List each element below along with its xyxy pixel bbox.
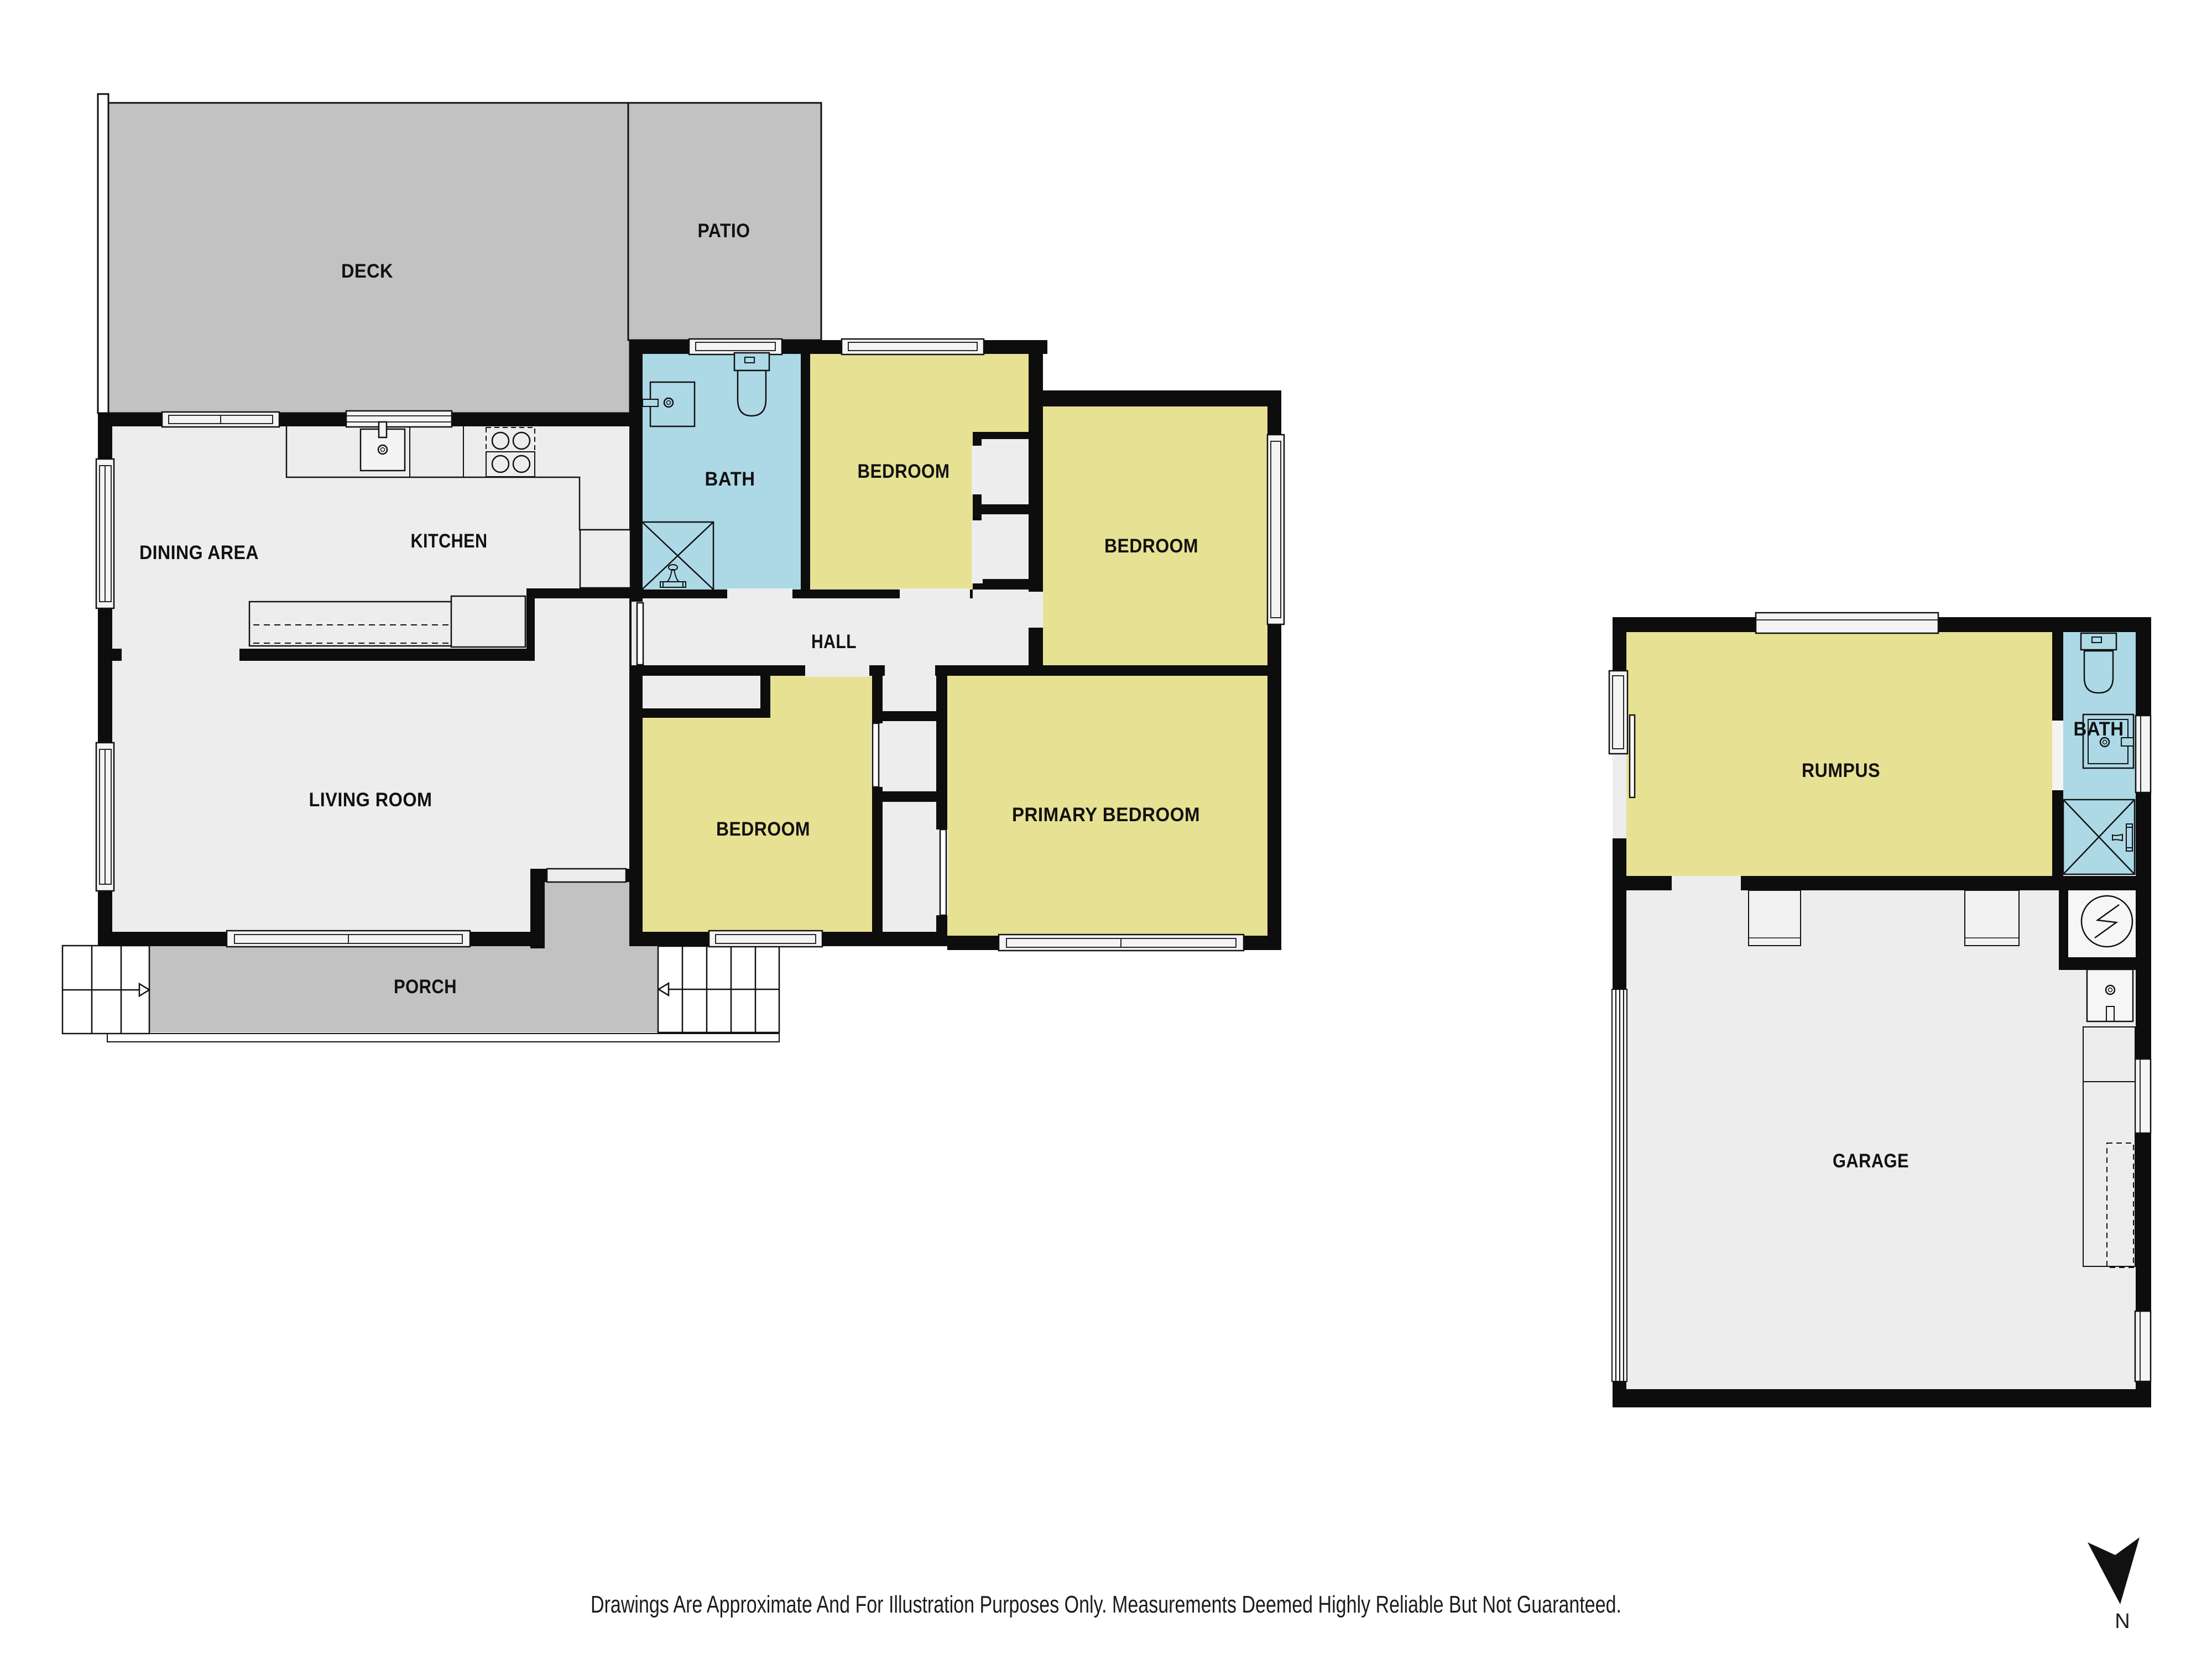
svg-text:LIVING ROOM: LIVING ROOM [309, 789, 432, 811]
svg-text:HALL: HALL [811, 631, 857, 653]
svg-text:DINING AREA: DINING AREA [139, 542, 259, 564]
svg-text:RUMPUS: RUMPUS [1802, 760, 1880, 781]
svg-text:DECK: DECK [341, 260, 393, 282]
svg-text:KITCHEN: KITCHEN [411, 530, 488, 552]
svg-text:PATIO: PATIO [698, 220, 750, 242]
svg-text:BEDROOM: BEDROOM [858, 461, 950, 482]
svg-text:BEDROOM: BEDROOM [1104, 535, 1198, 557]
svg-text:BATH: BATH [705, 468, 755, 490]
svg-text:GARAGE: GARAGE [1833, 1150, 1909, 1172]
svg-text:PRIMARY BEDROOM: PRIMARY BEDROOM [1012, 804, 1200, 826]
svg-text:PORCH: PORCH [394, 976, 457, 998]
svg-text:Drawings Are Approximate And F: Drawings Are Approximate And For Illustr… [591, 1591, 1621, 1618]
svg-text:BATH: BATH [2074, 718, 2124, 740]
svg-text:BEDROOM: BEDROOM [716, 818, 810, 840]
svg-text:N: N [2115, 1610, 2130, 1633]
